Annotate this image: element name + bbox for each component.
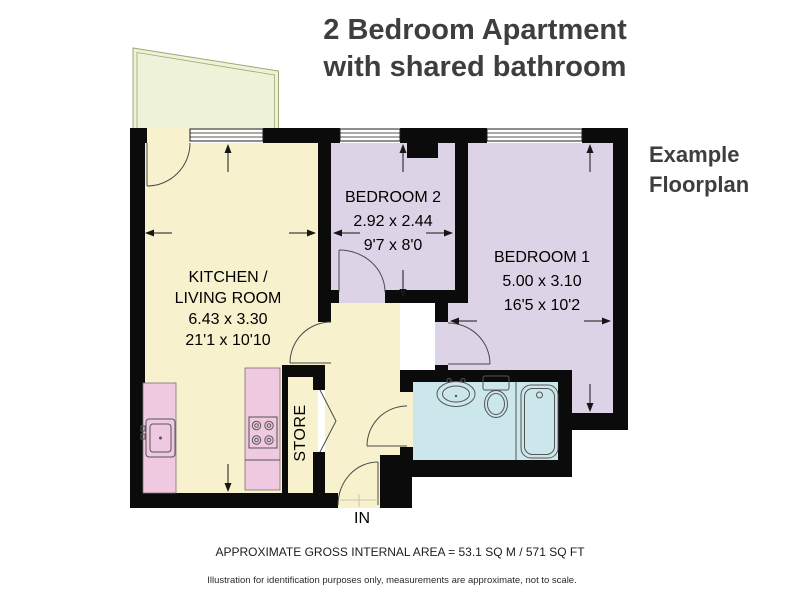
- balcony-door-opening: [147, 128, 190, 143]
- page-title-line1: 2 Bedroom Apartment: [150, 12, 800, 49]
- counter-right: [245, 368, 280, 490]
- store-label: STORE: [292, 404, 310, 461]
- page-title-line2: with shared bathroom: [150, 49, 800, 86]
- gross-internal-area-text: APPROXIMATE GROSS INTERNAL AREA = 53.1 S…: [0, 545, 800, 559]
- entrance-in-label: IN: [354, 510, 370, 528]
- disclaimer-text: Illustration for identification purposes…: [0, 575, 784, 586]
- bedroom-1-door-opening: [435, 322, 448, 365]
- kitchen-living-room-label: KITCHEN / LIVING ROOM 6.43 x 3.30 21'1 x…: [175, 267, 282, 351]
- floorplan-page: 2 Bedroom Apartment with shared bathroom…: [0, 0, 800, 600]
- page-title: 2 Bedroom Apartment with shared bathroom: [150, 12, 800, 86]
- window-icon: [190, 129, 263, 141]
- bedroom-1-label: BEDROOM 1 5.00 x 3.10 16'5 x 10'2: [494, 246, 590, 318]
- floorplan-drawing: [0, 0, 800, 600]
- example-floorplan-label: Example Floorplan: [649, 140, 749, 200]
- bathroom-floor: [413, 382, 558, 460]
- window-icon: [340, 129, 400, 141]
- bedroom-2-door-opening: [339, 290, 385, 303]
- window-icon: [487, 129, 582, 141]
- bedroom-2-label: BEDROOM 2 2.92 x 2.44 9'7 x 8'0: [345, 186, 441, 258]
- bathroom-door-opening: [400, 392, 413, 447]
- window-symbols: [190, 129, 582, 141]
